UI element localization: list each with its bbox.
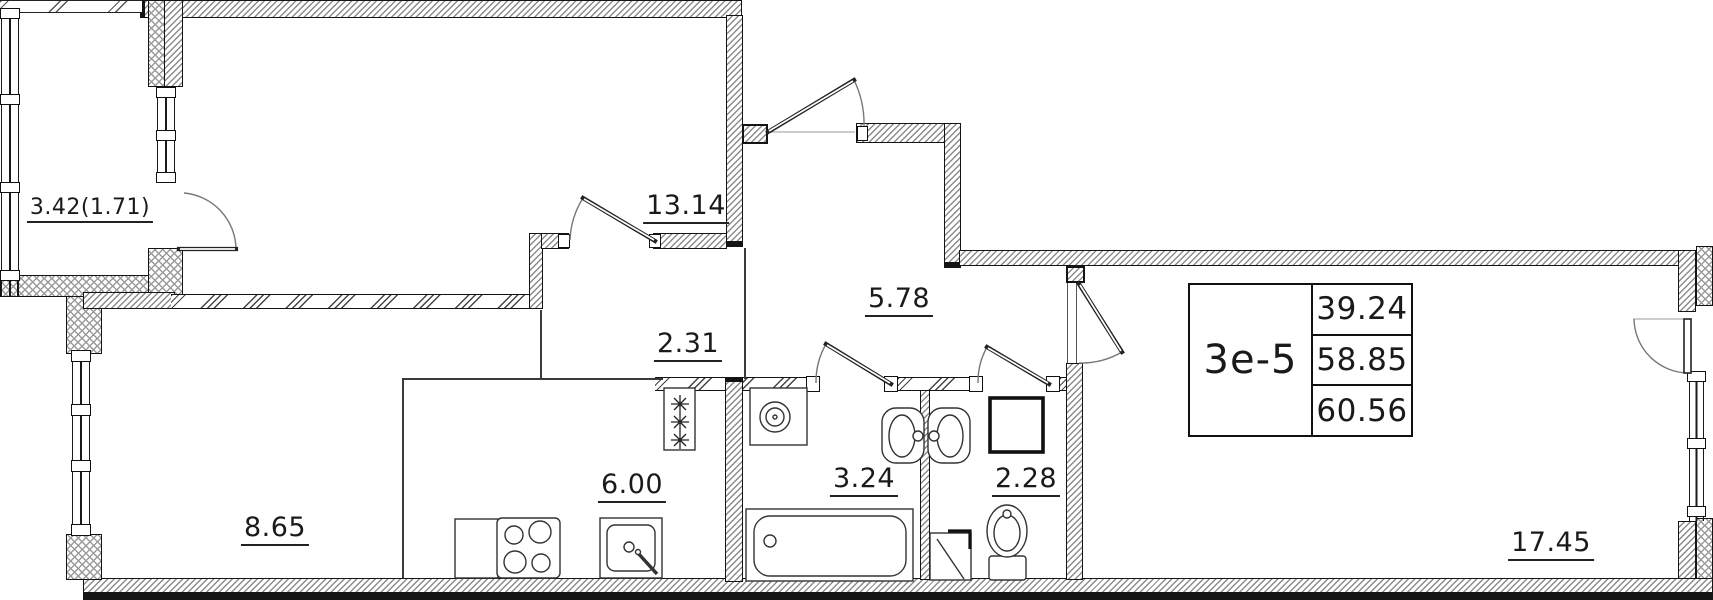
kitchen-sink-bowl (607, 525, 655, 571)
window-tick (71, 350, 91, 362)
room-label-balcony: 3.42(1.71) (27, 196, 153, 223)
door-leaf-core (769, 81, 853, 131)
wall-bedroom-corridor-b (653, 233, 727, 249)
unit-type-label: 3е-5 (1190, 285, 1313, 435)
stove (497, 518, 560, 578)
door-jamb (884, 376, 898, 392)
door-leaf (987, 347, 1049, 384)
living-window (72, 350, 90, 536)
entrance-jamb-block (742, 124, 768, 144)
room-label-bedroom2: 17.45 (1508, 529, 1594, 561)
door-jamb (558, 234, 570, 248)
washing-machine (750, 388, 807, 445)
door-jamb (857, 126, 868, 141)
bathtub-drain (764, 535, 776, 547)
wall-entrance (856, 123, 946, 143)
sink-bathroom (882, 408, 924, 463)
stove-burner (529, 521, 551, 543)
window-tick (1687, 506, 1706, 517)
vent-snowflake-icon (671, 395, 689, 449)
door-frame (1067, 283, 1077, 363)
room-label-bathroom: 3.24 (830, 465, 898, 497)
unit-total-area: 58.85 (1313, 336, 1411, 387)
door-jamb (806, 376, 820, 392)
washing-machine-dot (773, 415, 777, 419)
washing-machine-door (760, 402, 790, 432)
toilet-detail (1003, 510, 1011, 518)
room-label-corridor: 2.31 (654, 330, 722, 362)
door-swing-arc (570, 198, 583, 240)
window-tick (1687, 371, 1706, 382)
stove-burner (532, 554, 550, 572)
wall-wc-room2 (1066, 363, 1083, 580)
sink-wc-tap (929, 431, 939, 441)
glazing-tick (0, 270, 20, 281)
toilet-bowl (987, 505, 1027, 557)
door-swing-arc (1079, 352, 1122, 363)
kitchen-zone-line-v (402, 378, 404, 578)
door-leaf (826, 344, 891, 384)
window-tick (156, 130, 176, 141)
room-label-wc: 2.28 (992, 465, 1060, 497)
kitchen-sink-unit (600, 518, 662, 578)
door-leaf (1079, 284, 1122, 352)
wall-right-bottom (1678, 521, 1696, 580)
glazing-tick (0, 8, 20, 19)
wall-hall-right (944, 123, 961, 268)
washing-machine-door-inner (766, 408, 784, 426)
wall-bath-wc (920, 390, 930, 580)
wall-right-top-ext (1696, 246, 1713, 306)
wall-left-bottom-corner (66, 534, 102, 580)
room-label-living: 8.65 (241, 514, 309, 546)
door-jamb (969, 376, 983, 392)
service-shaft-corner (948, 531, 970, 549)
glazing-tick (0, 182, 20, 193)
toilet-tank (989, 556, 1026, 580)
floor-plan-canvas: 3.42(1.71) 13.14 2.31 5.78 6.00 8.65 3.2… (0, 0, 1713, 600)
sink-bathroom-bowl (889, 415, 915, 457)
bathtub-inner (754, 516, 906, 576)
sink-wc-bowl (937, 415, 963, 457)
door-swing-arc (854, 80, 864, 126)
door-leaf (1684, 319, 1691, 373)
corridor-zone-line (540, 310, 542, 379)
window-tick (156, 87, 176, 98)
wall-room2-door-jamb (1066, 266, 1085, 283)
room-label-kitchen: 6.00 (598, 471, 666, 503)
window-tick (71, 404, 91, 416)
sink-wc (928, 408, 970, 463)
wall-right-top (1678, 250, 1696, 312)
window-tick (71, 524, 91, 536)
bathtub (746, 509, 913, 581)
washing-machine-wc (990, 398, 1043, 452)
stove-burner (505, 526, 523, 544)
wall-room2-top (959, 250, 1683, 266)
door-jamb (1046, 376, 1060, 392)
kitchen-zone-line-h (403, 378, 663, 380)
wall-bedroom-top (140, 0, 742, 18)
door-swing-arc (1634, 319, 1689, 373)
stove-burner (504, 551, 526, 573)
room-label-bedroom: 13.14 (643, 192, 729, 224)
door-leaf-core (988, 348, 1048, 383)
kitchen-counter (455, 519, 498, 578)
service-shaft-flap (937, 539, 964, 579)
kitchen-sink-drain (624, 542, 634, 552)
balcony-glazing (1, 8, 19, 296)
window-tick (156, 172, 176, 183)
vent-shaft (664, 388, 695, 450)
wall-bedroom-living2 (171, 294, 531, 309)
service-shaft (930, 533, 971, 580)
door-swing-arc (184, 193, 236, 249)
wall-cap (725, 377, 743, 382)
unit-info-table: 3е-5 39.24 58.85 60.56 (1188, 283, 1413, 437)
unit-overall-area: 60.56 (1313, 386, 1411, 435)
door-leaf-core (1080, 285, 1121, 351)
door-jamb (649, 234, 661, 248)
window-tick (1687, 438, 1706, 449)
window-tick (71, 460, 91, 472)
wall-bath-top-b (898, 377, 971, 391)
unit-living-area: 39.24 (1313, 285, 1411, 336)
toilet-bowl-inner (994, 515, 1020, 551)
wall-bedroom-left-top2 (164, 0, 183, 87)
wall-bottom-base (83, 592, 1713, 600)
wall-bedroom-living (83, 292, 175, 309)
door-leaf (768, 80, 854, 132)
room-label-hall: 5.78 (865, 285, 933, 317)
glazing-tick (0, 94, 20, 105)
wall-bedroom-left-bot (148, 248, 183, 297)
kitchen-faucet (637, 552, 657, 574)
kitchen-faucet-base (636, 550, 641, 555)
wall-kitchen-bath (725, 378, 743, 582)
wall-cap (726, 241, 743, 247)
door-leaf-core (827, 345, 890, 383)
wall-balcony-top (0, 0, 142, 13)
hall-zone-line (744, 248, 746, 379)
